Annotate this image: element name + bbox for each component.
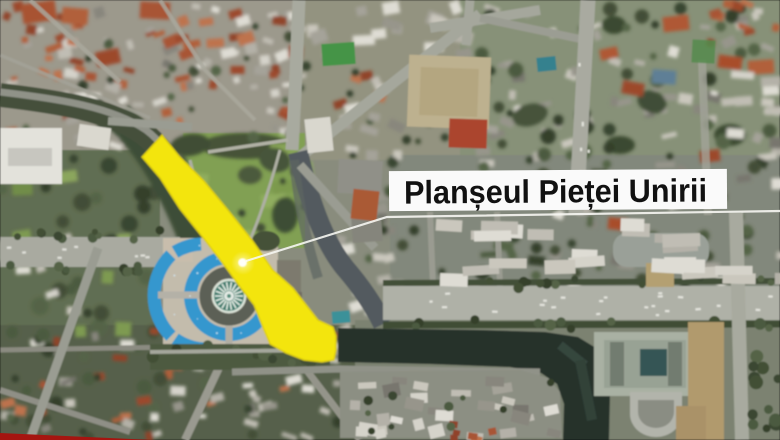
svg-text:Planșeul Pieței Unirii: Planșeul Pieței Unirii [404,172,707,211]
